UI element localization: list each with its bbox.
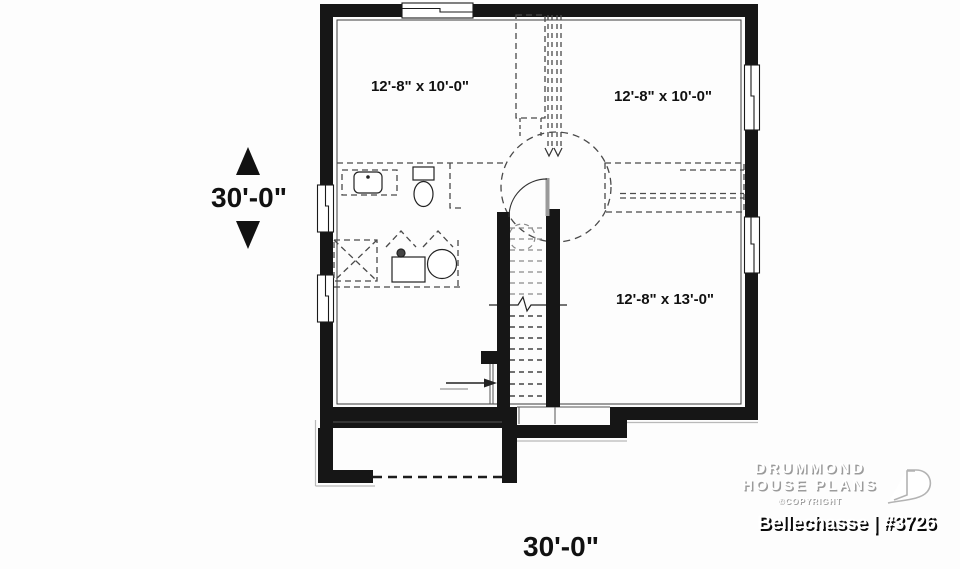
floor-drain-icon	[397, 249, 405, 257]
entry-arrow-icon	[440, 379, 497, 390]
copyright-label: ©COPYRIGHT	[742, 497, 878, 506]
room-label-1: 12'-8" x 10'-0"	[371, 78, 469, 95]
logo-line2: HOUSE PLANS	[742, 477, 878, 494]
arrow-down-icon	[236, 221, 260, 249]
door-swing-arc	[509, 179, 547, 217]
window-left-2-icon	[318, 275, 334, 322]
window-right-1-icon	[745, 65, 760, 130]
door-leaf-icon	[546, 178, 550, 216]
horizontal-dimension-label: 30'-0"	[523, 531, 599, 562]
window-right-2-icon	[745, 217, 760, 273]
stair-treads-upper	[510, 228, 546, 294]
drummond-logo-icon	[884, 462, 936, 508]
logo-wordmark: DRUMMOND HOUSE PLANS ©COPYRIGHT	[742, 460, 878, 506]
sink-icon	[354, 172, 382, 193]
window-left-1-icon	[318, 185, 334, 232]
dashed-partitions	[334, 15, 744, 287]
room-label-2: 12'-8" x 10'-0"	[614, 88, 712, 105]
washer-icon	[392, 257, 425, 282]
staircase	[440, 178, 567, 407]
plan-title: Bellechasse | #3726	[736, 513, 936, 535]
arrow-up-icon	[236, 147, 260, 175]
fixtures	[354, 167, 457, 282]
outer-walls	[318, 4, 758, 483]
windows	[318, 3, 760, 322]
vertical-dimension-label: 30'-0"	[211, 182, 287, 213]
duct-arrows-icon	[545, 148, 562, 156]
floor-plan-page: 12'-8" x 10'-0" 12'-8" x 10'-0" 12'-8" x…	[0, 0, 960, 569]
room-label-3: 12'-8" x 13'-0"	[616, 291, 714, 308]
stair-treads-lower	[510, 316, 546, 396]
window-top-icon	[402, 3, 473, 18]
dryer-icon	[428, 250, 457, 279]
vertical-dimension: 30'-0"	[211, 147, 287, 249]
drummond-branding: DRUMMOND HOUSE PLANS ©COPYRIGHT Bellecha…	[736, 460, 936, 535]
logo-line1: DRUMMOND	[742, 460, 878, 477]
toilet-icon	[413, 167, 434, 207]
